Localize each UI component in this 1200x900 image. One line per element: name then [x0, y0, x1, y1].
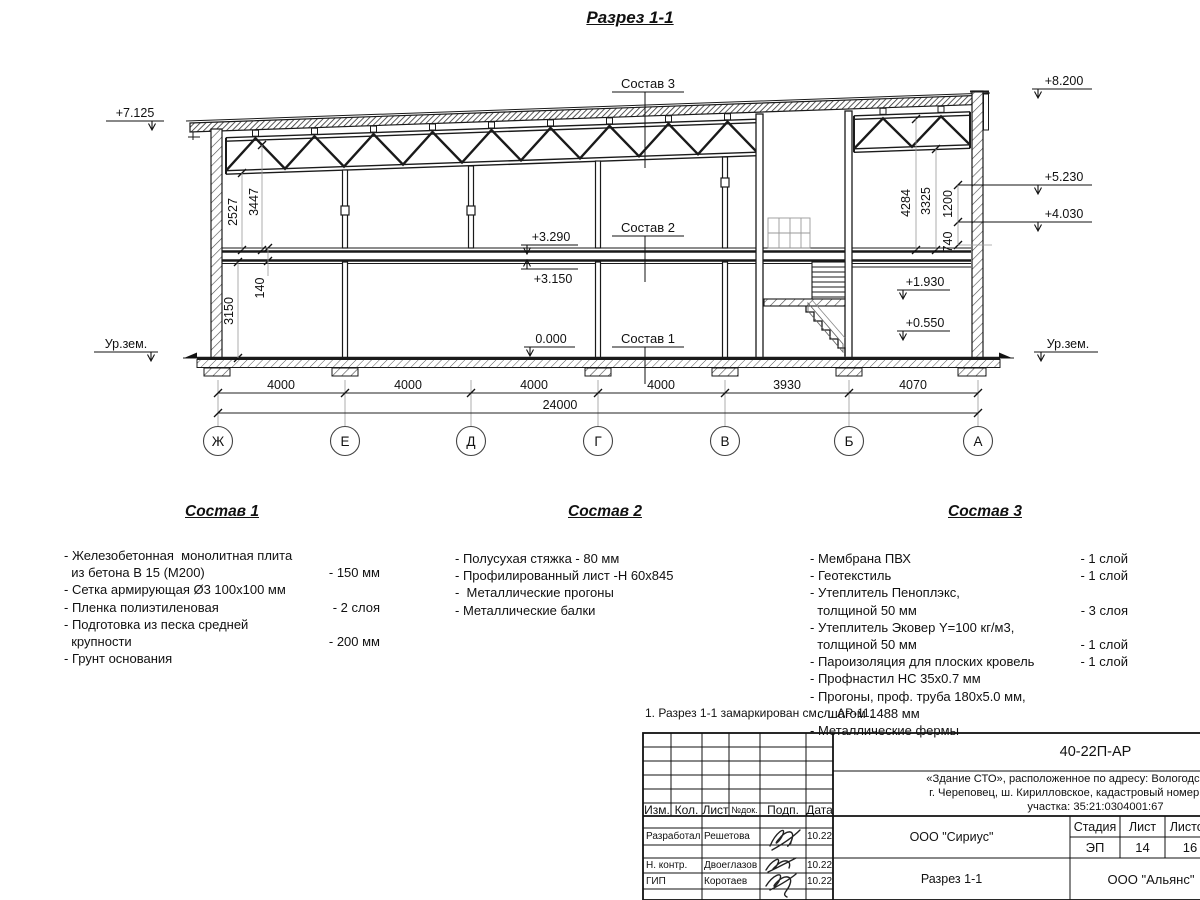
axis-label: Г — [594, 434, 602, 449]
elevation-4030: +4.030 — [1045, 207, 1084, 221]
page-title: Разрез 1-1 — [500, 8, 760, 28]
signatures — [766, 830, 800, 897]
drawing-note: 1. Разрез 1-1 замаркирован см. л. АР-11. — [645, 706, 1005, 720]
list-item: - Профилированный лист -Н 60х845 — [455, 567, 745, 584]
list-item: - Пароизоляция для плоских кровель- 1 сл… — [810, 653, 1128, 670]
tb-col-list: Лист — [702, 803, 729, 816]
tb-date: 10.22 — [806, 873, 833, 889]
left-wall — [211, 129, 222, 358]
leader-sostav3: Состав 3 — [621, 76, 675, 91]
vdim-3447: 3447 — [247, 188, 261, 216]
elevation-stair-landing: +1.930 — [906, 275, 945, 289]
composition-2-title: Состав 2 — [455, 503, 755, 521]
elevation-floor-top: +3.290 — [532, 230, 571, 244]
leader-sostav2: Состав 2 — [621, 220, 675, 235]
organization-name: ООО "Сириус" — [833, 816, 1070, 858]
axis-label: Е — [340, 434, 349, 449]
project-description: «Здание СТО», расположенное по адресу: В… — [843, 773, 1200, 814]
vdim-4284: 4284 — [899, 189, 913, 217]
document-number: 40-22П-АР — [833, 733, 1200, 771]
elevation-roof-left: +7.125 — [116, 106, 155, 120]
ground-level-right: Ур.зем. — [1047, 337, 1089, 351]
list-item: - Металлические прогоны — [455, 584, 745, 601]
elevation-floor-bottom: +3.150 — [534, 272, 573, 286]
stage-label: Стадия — [1070, 816, 1120, 837]
signature-2 — [766, 858, 796, 872]
elevation-zero: 0.000 — [535, 332, 566, 346]
truss-right — [854, 112, 970, 153]
sheet-title: Разрез 1-1 — [833, 858, 1070, 900]
list-item: - Профнастил НС 35х0.7 мм — [810, 670, 1128, 687]
sheet-number: 14 — [1120, 837, 1165, 858]
vdim-3150: 3150 — [222, 297, 236, 325]
leader-sostav1: Состав 1 — [621, 331, 675, 346]
dim-total: 24000 — [543, 398, 578, 412]
list-item: - Полусухая стяжка - 80 мм — [455, 550, 745, 567]
tb-role: Н. контр. — [646, 858, 701, 873]
vdim-140: 140 — [253, 278, 267, 299]
vdim-2527: 2527 — [226, 198, 240, 226]
right-wall — [972, 91, 983, 358]
elevation-stair-low: +0.550 — [906, 316, 945, 330]
composition-2-list: - Полусухая стяжка - 80 мм - Профилирова… — [455, 550, 745, 619]
tb-name: Коротаев — [704, 873, 759, 889]
signature-1 — [770, 830, 800, 850]
axis-label: А — [973, 434, 982, 449]
list-item: - Сетка армирующая Ø3 100х100 мм — [64, 581, 380, 598]
ground-level-left: Ур.зем. — [105, 337, 147, 351]
tb-role: ГИП — [646, 873, 701, 889]
vdim-3325: 3325 — [919, 187, 933, 215]
stair-landing-slab — [764, 299, 845, 306]
dim-span-4: 4000 — [647, 378, 675, 392]
roof-slab — [190, 95, 983, 132]
sheets-total-label: Листов — [1165, 816, 1200, 837]
list-item: - Мембрана ПВХ- 1 слой — [810, 550, 1128, 567]
axis-label: Ж — [212, 434, 225, 449]
stage-value: ЭП — [1070, 837, 1120, 858]
list-item: - Металлические балки — [455, 602, 745, 619]
tb-date: 10.22 — [806, 858, 833, 873]
axis-label: Б — [845, 434, 854, 449]
list-item: - Геотекстиль- 1 слой — [810, 567, 1128, 584]
vdim-1200: 1200 — [941, 190, 955, 218]
tb-col-ndok: №док. — [729, 803, 760, 816]
eaves-detail — [188, 132, 200, 140]
dim-span-5: 3930 — [773, 378, 801, 392]
dim-span-2: 4000 — [394, 378, 422, 392]
tb-role: Разработал — [646, 828, 701, 845]
tb-col-izm: Изм. — [643, 803, 671, 816]
tb-name: Решетова — [704, 828, 759, 845]
composition-1-list: - Железобетонная монолитная плита из бет… — [64, 547, 380, 667]
company-name: ООО "Альянс" — [1070, 858, 1200, 900]
parapet-flashing — [984, 94, 989, 130]
list-item: - Утеплитель Пеноплэкс, толщиной 50 мм- … — [810, 584, 1128, 618]
list-item: - Грунт основания — [64, 650, 380, 667]
dim-span-1: 4000 — [267, 378, 295, 392]
dim-span-6: 4070 — [899, 378, 927, 392]
axis-label: Д — [466, 434, 475, 449]
composition-3-title: Состав 3 — [820, 503, 1150, 521]
list-item: - Подготовка из песка средней крупности-… — [64, 616, 380, 650]
tb-col-podp: Подп. — [760, 803, 806, 816]
dim-span-3: 4000 — [520, 378, 548, 392]
tb-col-kol: Кол. — [671, 803, 702, 816]
tb-col-data: Дата — [806, 803, 833, 816]
stair-shaft — [756, 111, 852, 358]
list-item: - Утеплитель Эковер Y=100 кг/м3, толщино… — [810, 619, 1128, 653]
axis-bubbles: Ж Е Д Г В Б А — [204, 427, 993, 456]
sheets-total-value: 16 — [1165, 837, 1200, 858]
list-item: - Пленка полиэтиленовая- 2 слоя — [64, 599, 380, 616]
composition-1-title: Состав 1 — [64, 503, 380, 521]
list-item: - Железобетонная монолитная плита из бет… — [64, 547, 380, 581]
elevation-parapet: +8.200 — [1045, 74, 1084, 88]
sheet-label: Лист — [1120, 816, 1165, 837]
signature-3 — [766, 874, 796, 897]
tb-date: 10.22 — [806, 828, 833, 845]
tb-name: Двоеглазов — [704, 858, 761, 873]
elevation-5230: +5.230 — [1045, 170, 1084, 184]
vdim-740: 740 — [941, 232, 955, 253]
shaft-wall-left — [756, 114, 763, 358]
intermediate-floor — [222, 248, 971, 264]
building-section — [183, 91, 1014, 376]
axis-label: В — [720, 434, 729, 449]
shaft-wall-right — [845, 111, 852, 358]
